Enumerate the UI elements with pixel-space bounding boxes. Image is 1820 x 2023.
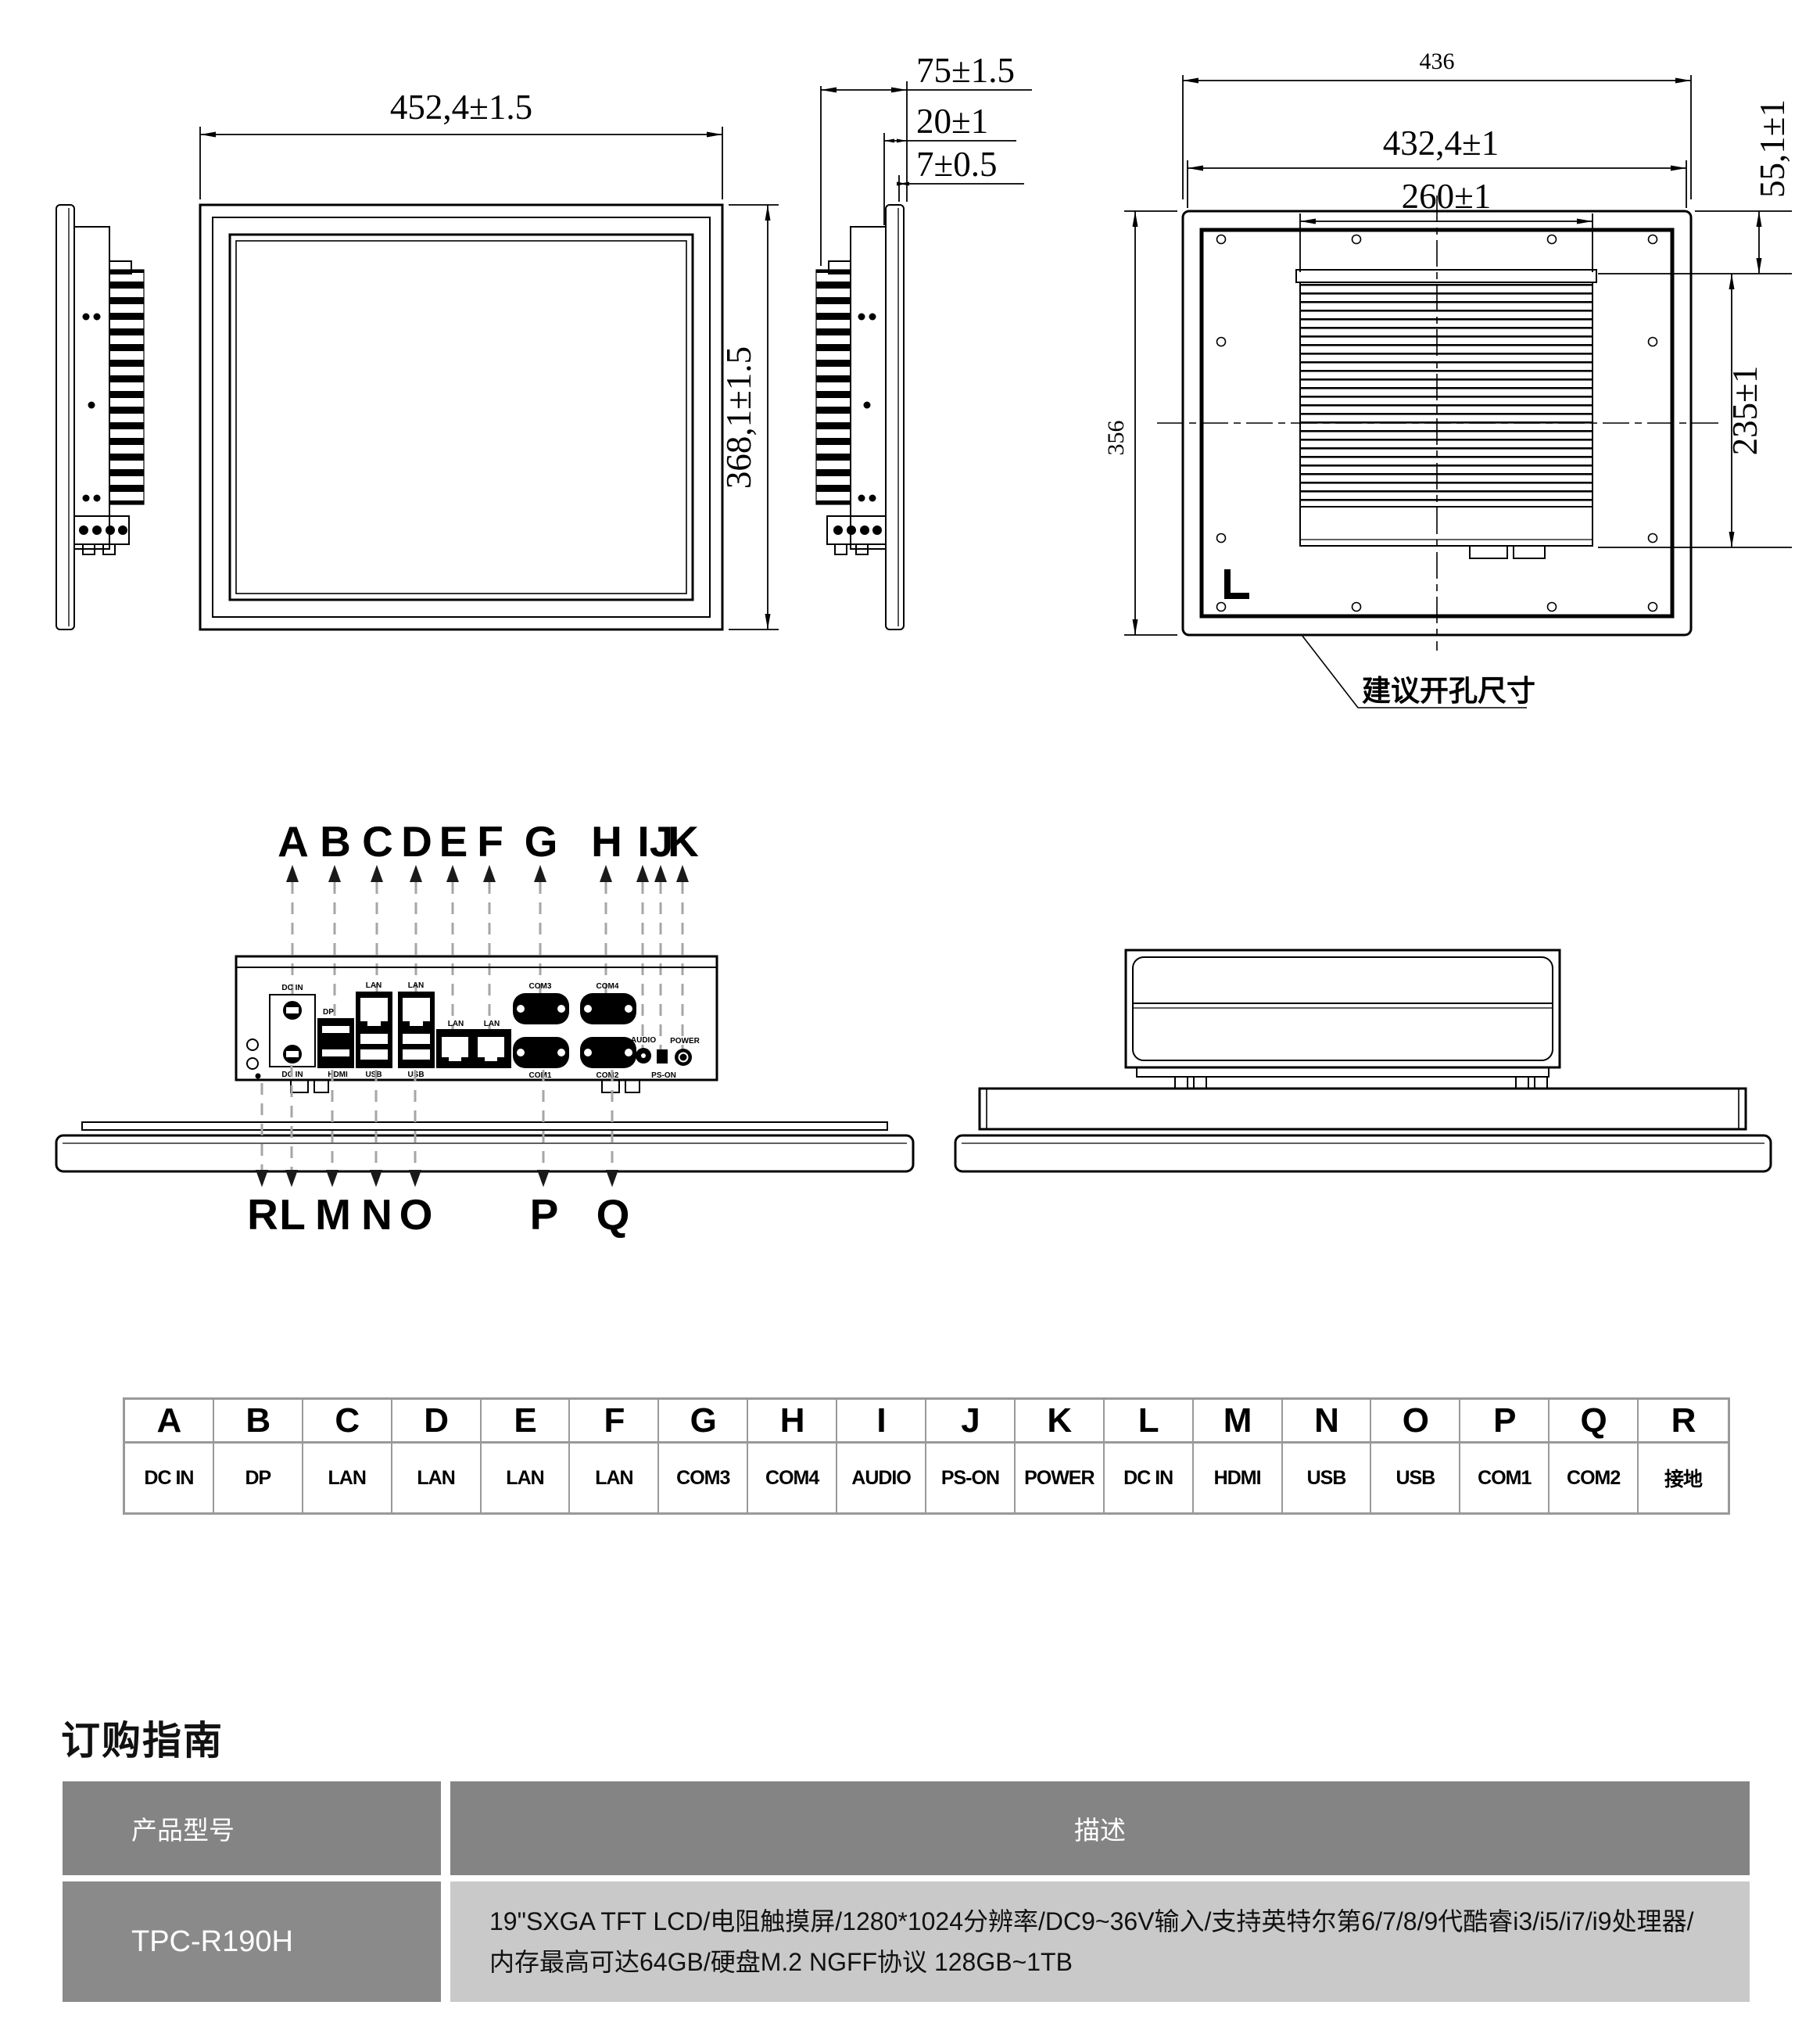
io-bottom-view: A B C D E F G H I J K [56, 817, 913, 1239]
lan-usb-combo-2 [398, 992, 435, 1068]
label-I: I [637, 817, 647, 866]
label-P: P [530, 1190, 557, 1239]
port-name: LAN [482, 1444, 571, 1512]
ordering-header-desc: 描述 [450, 1781, 1750, 1875]
label-H: H [591, 817, 621, 866]
port-letter: M [1194, 1400, 1283, 1444]
technical-drawing-canvas: 452,4±1.5 368,1±1.5 75±1.5 20±1 7± [0, 0, 1820, 1376]
port-letter: O [1371, 1400, 1460, 1444]
datasheet-page: 452,4±1.5 368,1±1.5 75±1.5 20±1 7± [0, 0, 1820, 2023]
label-O: O [399, 1190, 432, 1239]
port-letter: A [125, 1400, 214, 1444]
port-name: COM3 [659, 1444, 748, 1512]
port-name: DP [214, 1444, 303, 1512]
dim-front-width: 452,4±1.5 [390, 88, 532, 127]
port-letter: D [392, 1400, 482, 1444]
ordering-header-desc-label: 描述 [1074, 1810, 1126, 1847]
port-letter: L [1105, 1400, 1194, 1444]
silk-pson: PS-ON [651, 1071, 676, 1080]
silk-dp: DP [323, 1008, 334, 1017]
port-name: POWER [1016, 1444, 1105, 1512]
io-bottom-letters: R L M N O P Q [247, 1190, 628, 1239]
label-G: G [525, 817, 557, 866]
port-name: 接地 [1639, 1444, 1728, 1512]
dim-side-panel: 7±0.5 [916, 145, 997, 184]
port-letter: C [303, 1400, 392, 1444]
ps-on-connector [657, 1049, 668, 1064]
silk-com2: COM2 [597, 1071, 619, 1080]
label-K: K [668, 817, 699, 866]
label-F: F [477, 817, 502, 866]
label-Q: Q [597, 1190, 629, 1239]
top-view [955, 950, 1771, 1171]
label-A: A [278, 817, 308, 866]
ordering-model-cell: TPC-R190H [63, 1881, 441, 2002]
silk-com4: COM4 [597, 982, 619, 991]
silk-audio: AUDIO [631, 1036, 656, 1045]
port-name: COM2 [1550, 1444, 1639, 1512]
port-letter: J [926, 1400, 1016, 1444]
io-top-letters: A B C D E F G H I J K [278, 817, 699, 866]
silk-com1: COM1 [529, 1071, 552, 1080]
dim-rear-outer-width: 436 [1420, 48, 1455, 74]
front-view: 452,4±1.5 368,1±1.5 [200, 88, 779, 629]
port-letter: P [1460, 1400, 1550, 1444]
dim-rear-top-offset: 55,1±1 [1753, 99, 1792, 198]
side-view-middle: 75±1.5 20±1 7±0.5 [816, 51, 1032, 629]
label-E: E [439, 817, 467, 866]
ordering-header-model: 产品型号 [63, 1781, 441, 1875]
product-desc-line1: 19"SXGA TFT LCD/电阻触摸屏/1280*1024分辨率/DC9~3… [489, 1901, 1718, 1942]
port-letter: G [659, 1400, 748, 1444]
port-letter: B [214, 1400, 303, 1444]
com-ports [513, 993, 636, 1068]
dim-rear-outer-height: 356 [1103, 421, 1129, 456]
port-name: USB [1371, 1444, 1460, 1512]
silk-lan4: LAN [484, 1020, 500, 1028]
side-view-left [56, 205, 144, 629]
dim-side-module: 20±1 [916, 102, 988, 141]
port-legend-table: A B C D E F G H I J K L M N O P Q R DC I… [123, 1397, 1730, 1515]
cutout-note: 建议开孔尺寸 [1362, 675, 1535, 707]
port-letter: K [1016, 1400, 1105, 1444]
silk-usb1: USB [365, 1071, 382, 1079]
dim-rear-heatsink-height: 235±1 [1725, 366, 1764, 456]
dim-rear-body-width: 432,4±1 [1383, 124, 1499, 163]
port-name: PS-ON [926, 1444, 1016, 1512]
port-name: DC IN [1105, 1444, 1194, 1512]
io-bottom-leaders [256, 1065, 618, 1187]
dim-side-total: 75±1.5 [916, 51, 1015, 90]
product-model: TPC-R190H [131, 1925, 293, 1959]
ordering-guide-title: 订购指南 [61, 1709, 224, 1766]
silk-com3: COM3 [529, 982, 552, 991]
ordering-header-model-label: 产品型号 [131, 1810, 235, 1847]
silk-lan2: LAN [408, 981, 425, 990]
port-name: COM4 [748, 1444, 837, 1512]
dc-in-connectors [270, 995, 315, 1067]
label-D: D [401, 817, 431, 866]
port-name: AUDIO [837, 1444, 926, 1512]
silk-dcin-top: DC IN [281, 984, 303, 992]
label-R: R [247, 1190, 278, 1239]
port-letter: F [570, 1400, 659, 1444]
label-C: C [362, 817, 392, 866]
port-name: HDMI [1194, 1444, 1283, 1512]
port-name: DC IN [125, 1444, 214, 1512]
dim-front-height: 368,1±1.5 [719, 346, 758, 489]
port-letter: E [482, 1400, 571, 1444]
dim-rear-heatsink-width: 260±1 [1402, 177, 1492, 216]
ordering-desc-cell: 19"SXGA TFT LCD/电阻触摸屏/1280*1024分辨率/DC9~3… [450, 1881, 1750, 2002]
product-desc-line2: 内存最高可达64GB/硬盘M.2 NGFF协议 128GB~1TB [489, 1942, 1718, 1982]
label-N: N [361, 1190, 391, 1239]
port-name: LAN [392, 1444, 482, 1512]
silk-lan1: LAN [366, 981, 382, 990]
lan-usb-combo-1 [356, 992, 392, 1068]
port-name: USB [1283, 1444, 1372, 1512]
silk-power: POWER [670, 1037, 700, 1046]
label-B: B [320, 817, 349, 866]
port-letter: I [837, 1400, 926, 1444]
silk-lan3: LAN [448, 1020, 464, 1028]
rear-view: 436 432,4±1 260±1 55,1±1 235±1 356 建议开孔尺… [1103, 48, 1792, 708]
silk-hdmi: HDMI [328, 1071, 348, 1079]
port-name: COM1 [1460, 1444, 1550, 1512]
port-letter: Q [1550, 1400, 1639, 1444]
dp-hdmi-ports [317, 1018, 354, 1068]
power-button [675, 1049, 692, 1066]
port-letter: R [1639, 1400, 1728, 1444]
port-name: LAN [303, 1444, 392, 1512]
label-L: L [279, 1190, 304, 1239]
port-name: LAN [570, 1444, 659, 1512]
port-letter: H [748, 1400, 837, 1444]
port-letter: N [1283, 1400, 1372, 1444]
label-M: M [315, 1190, 349, 1239]
lan-ports-ef [436, 1029, 511, 1068]
